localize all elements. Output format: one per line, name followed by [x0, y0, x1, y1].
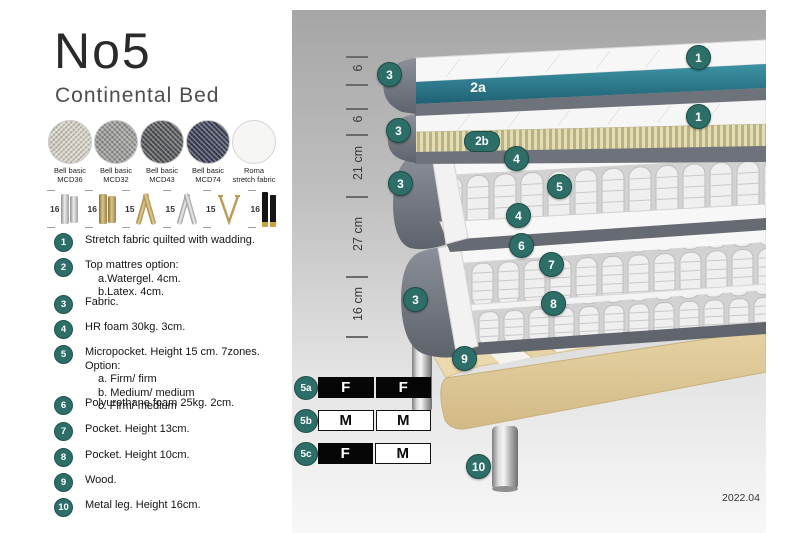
metal-leg-front — [492, 426, 518, 490]
firmness-cell: F — [318, 443, 373, 464]
firmness-cell: F — [376, 377, 432, 398]
firmness-row-id: 5b — [294, 409, 318, 433]
callout-1: 1 — [686, 104, 711, 129]
ruler-tick — [346, 336, 368, 338]
measurement-label: 16 cm — [351, 274, 365, 334]
callout-6: 6 — [509, 233, 534, 258]
callout-9: 9 — [452, 346, 477, 371]
callout-4: 4 — [504, 146, 529, 171]
firmness-row: F M — [318, 443, 431, 464]
callout-3: 3 — [386, 118, 411, 143]
callout-3: 3 — [377, 62, 402, 87]
measurement-label: 27 cm — [351, 204, 365, 264]
ruler-tick — [346, 196, 368, 198]
firmness-row-id: 5c — [294, 442, 318, 466]
firmness-row: F F — [318, 377, 431, 398]
firmness-cell: M — [318, 410, 374, 431]
callout-2a: 2a — [460, 79, 496, 95]
firmness-cell: M — [376, 410, 432, 431]
callout-8: 8 — [541, 291, 566, 316]
firmness-row-id: 5a — [294, 376, 318, 400]
callout-5: 5 — [547, 174, 572, 199]
measurement-label: 21 cm — [351, 133, 365, 193]
firmness-cell: F — [318, 377, 374, 398]
firmness-cell: M — [375, 443, 432, 464]
callout-3: 3 — [388, 171, 413, 196]
callout-3: 3 — [403, 287, 428, 312]
callout-10: 10 — [466, 454, 491, 479]
callout-2b: 2b — [464, 131, 500, 152]
callout-4: 4 — [506, 203, 531, 228]
firmness-row: M M — [318, 410, 431, 431]
callout-7: 7 — [539, 252, 564, 277]
callout-1: 1 — [686, 45, 711, 70]
leg-foot — [492, 486, 518, 492]
version-label: 2022.04 — [690, 492, 760, 504]
poster: No5 Continental Bed Bell basicMCD36 Bell… — [0, 0, 800, 533]
